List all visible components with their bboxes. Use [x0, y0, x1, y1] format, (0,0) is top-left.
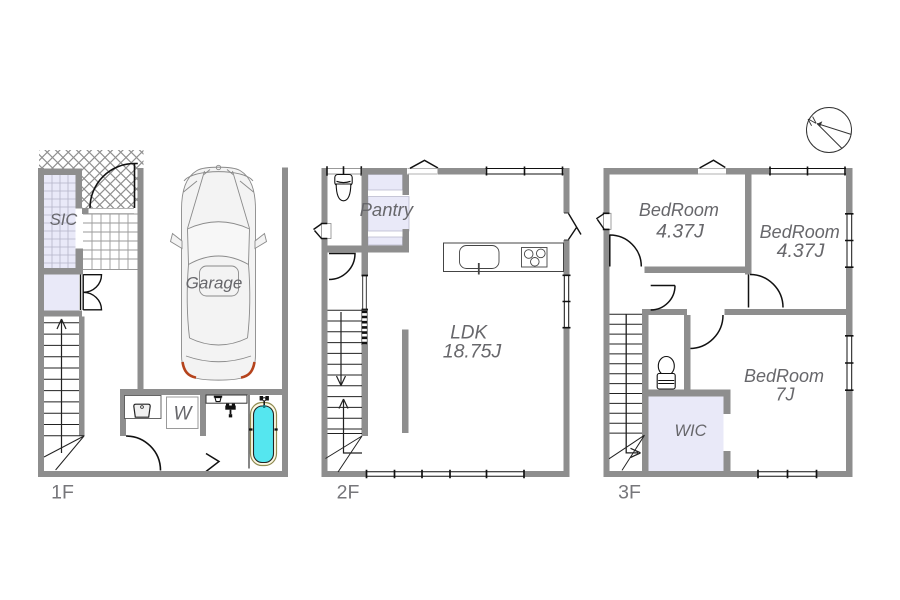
svg-text:W: W: [174, 404, 194, 425]
svg-text:4.37J: 4.37J: [777, 240, 825, 262]
svg-text:1F: 1F: [51, 482, 74, 504]
svg-text:BedRoom: BedRoom: [744, 366, 824, 386]
svg-text:WIC: WIC: [674, 422, 706, 440]
svg-text:Pantry: Pantry: [360, 199, 415, 220]
svg-text:18.75J: 18.75J: [443, 341, 502, 363]
svg-text:BedRoom: BedRoom: [639, 200, 719, 220]
svg-text:2F: 2F: [337, 482, 360, 504]
svg-text:SIC: SIC: [50, 211, 78, 229]
svg-text:4.37J: 4.37J: [656, 221, 704, 243]
svg-text:7J: 7J: [775, 385, 795, 405]
svg-text:BedRoom: BedRoom: [760, 222, 840, 242]
svg-text:Garage: Garage: [186, 274, 243, 293]
svg-text:3F: 3F: [618, 482, 641, 504]
